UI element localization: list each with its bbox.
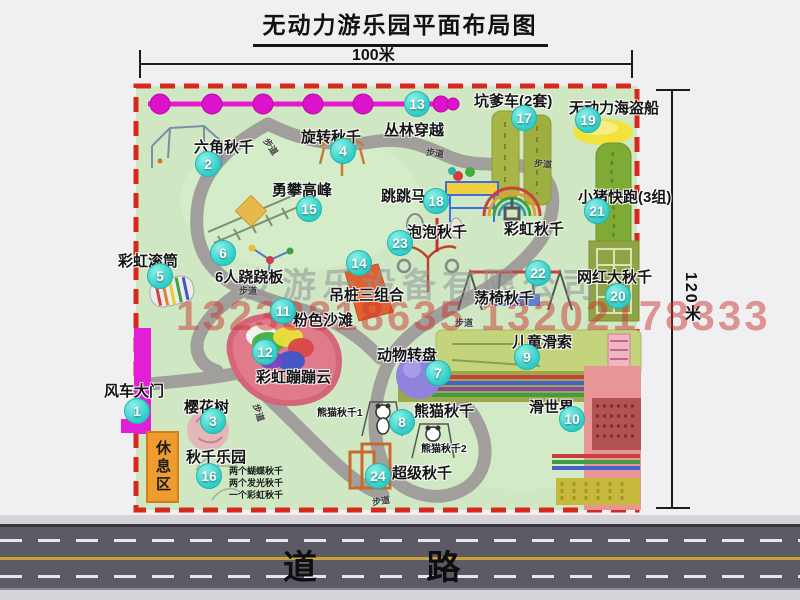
badge-13: 13 bbox=[404, 91, 430, 117]
label-swing-chair: 荡椅秋千 bbox=[474, 287, 534, 308]
badge-6: 6 bbox=[210, 240, 236, 266]
park-layout-plan: 无动力游乐园平面布局图 100米 120米 安游乐设备有限公司 13233818… bbox=[0, 0, 800, 600]
badge-2: 2 bbox=[195, 151, 221, 177]
label-rainbow-cloud: 彩虹蹦蹦云 bbox=[256, 366, 331, 387]
label-panda-swing: 熊猫秋千 bbox=[414, 400, 474, 421]
label-jungle-crossing: 丛林穿越 bbox=[384, 119, 444, 140]
badge-17: 17 bbox=[511, 105, 537, 131]
badge-3: 3 bbox=[200, 408, 226, 434]
badge-1: 1 bbox=[124, 398, 150, 424]
badge-15: 15 bbox=[296, 196, 322, 222]
swing-park-note-2: 两个发光秋千 bbox=[229, 478, 283, 489]
label-pile-combo: 吊桩三组合 bbox=[329, 284, 404, 305]
label-animal-turntable: 动物转盘 bbox=[377, 344, 437, 365]
badge-11: 11 bbox=[270, 298, 296, 324]
label-pit-car: 坑爹车(2套) bbox=[474, 90, 552, 111]
badge-18: 18 bbox=[423, 188, 449, 214]
badge-16: 16 bbox=[196, 463, 222, 489]
label-jump-horse: 跳跳马 bbox=[381, 185, 426, 206]
badge-20: 20 bbox=[605, 283, 631, 309]
badge-19: 19 bbox=[575, 107, 601, 133]
title-wrap: 无动力游乐园平面布局图 bbox=[0, 6, 800, 47]
label-panda-swing-2: 熊猫秋千2 bbox=[421, 440, 467, 455]
badge-21: 21 bbox=[584, 198, 610, 224]
label-seesaw: 6人跷跷板 bbox=[215, 266, 283, 287]
rest-area-label: 休息区 bbox=[152, 440, 173, 494]
path-label: 步道 bbox=[425, 145, 445, 160]
badge-10: 10 bbox=[559, 406, 585, 432]
page-title: 无动力游乐园平面布局图 bbox=[253, 6, 548, 47]
swing-park-note-1: 两个蝴蝶秋千 bbox=[229, 466, 283, 477]
label-swing-park: 秋千乐园 bbox=[186, 446, 246, 467]
path-label: 步道 bbox=[455, 316, 473, 329]
badge-5: 5 bbox=[147, 263, 173, 289]
swing-park-note-3: 一个彩虹秋千 bbox=[229, 490, 283, 501]
label-super-swing: 超级秋千 bbox=[392, 462, 452, 483]
road-label: 道 路 bbox=[283, 540, 510, 589]
label-panda-swing-1: 熊猫秋千1 bbox=[317, 404, 363, 419]
badge-4: 4 bbox=[330, 138, 356, 164]
label-pink-beach: 粉色沙滩 bbox=[293, 309, 353, 330]
badge-22: 22 bbox=[525, 260, 551, 286]
dimension-width-label: 100米 bbox=[352, 41, 395, 65]
badge-24: 24 bbox=[365, 463, 391, 489]
badge-12: 12 bbox=[252, 339, 278, 365]
label-bubble-swing: 泡泡秋千 bbox=[407, 221, 467, 242]
badge-7: 7 bbox=[425, 360, 451, 386]
badge-14: 14 bbox=[346, 250, 372, 276]
badge-23: 23 bbox=[387, 230, 413, 256]
path-label: 步道 bbox=[533, 156, 552, 171]
badge-8: 8 bbox=[389, 409, 415, 435]
dimension-height-label: 120米 bbox=[678, 272, 702, 323]
badge-9: 9 bbox=[514, 344, 540, 370]
rest-area: 休息区 bbox=[146, 431, 179, 503]
label-rainbow-swing: 彩虹秋千 bbox=[504, 218, 564, 239]
path-label: 步道 bbox=[371, 493, 391, 508]
